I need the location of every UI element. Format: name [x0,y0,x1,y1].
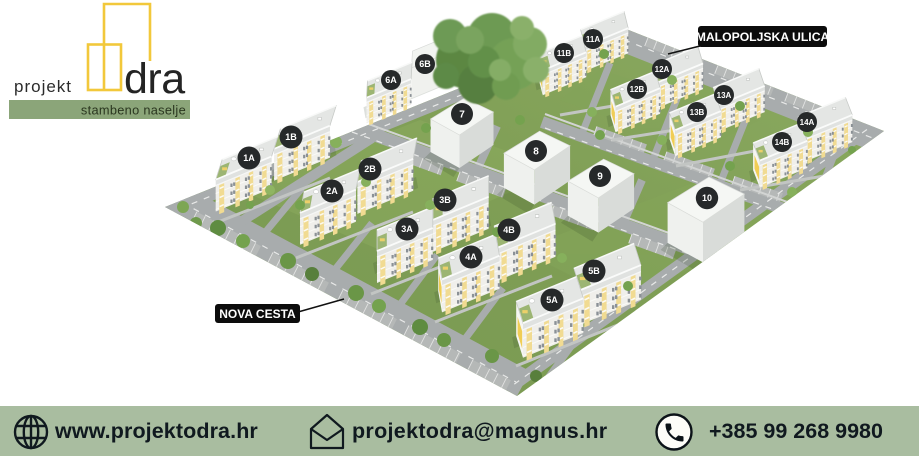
svg-text:projektodra@magnus.hr: projektodra@magnus.hr [352,419,608,443]
svg-text:3B: 3B [439,195,451,205]
svg-text:2A: 2A [326,186,338,196]
svg-text:13B: 13B [690,108,705,117]
svg-text:6A: 6A [385,75,397,85]
svg-text:7: 7 [459,110,465,121]
svg-text:1A: 1A [243,153,255,163]
svg-text:5A: 5A [546,295,558,305]
svg-text:www.projektodra.hr: www.projektodra.hr [54,419,258,443]
svg-text:3A: 3A [401,224,413,234]
svg-text:10: 10 [702,193,712,203]
svg-text:2B: 2B [364,164,376,174]
svg-text:6B: 6B [419,59,431,69]
svg-text:11B: 11B [557,49,571,58]
svg-text:dra: dra [124,55,185,103]
svg-text:4A: 4A [465,252,477,262]
svg-text:11A: 11A [586,35,600,44]
svg-text:NOVA CESTA: NOVA CESTA [219,307,296,321]
svg-text:4B: 4B [503,225,515,235]
svg-text:stambeno naselje: stambeno naselje [81,103,186,118]
svg-text:1B: 1B [285,132,297,142]
svg-text:13A: 13A [717,91,732,100]
svg-text:8: 8 [533,147,539,158]
svg-text:projekt: projekt [14,77,72,96]
svg-text:14A: 14A [800,118,815,127]
svg-text:+385 99 268 9980: +385 99 268 9980 [709,419,883,443]
svg-text:12B: 12B [630,85,645,94]
svg-text:5B: 5B [588,266,600,276]
svg-text:14B: 14B [775,138,790,147]
svg-text:MALOPOLJSKA ULICA: MALOPOLJSKA ULICA [696,30,830,44]
svg-text:12A: 12A [655,65,670,74]
svg-text:9: 9 [597,172,603,183]
